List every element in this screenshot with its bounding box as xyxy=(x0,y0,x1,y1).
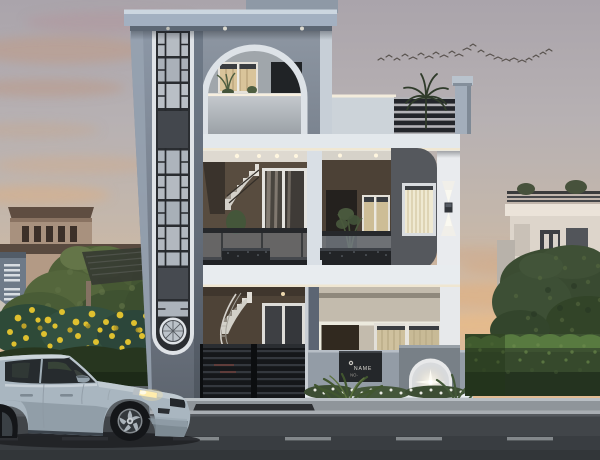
svg-text:NAME: NAME xyxy=(354,366,372,372)
svg-text:NO-: NO- xyxy=(350,373,358,378)
